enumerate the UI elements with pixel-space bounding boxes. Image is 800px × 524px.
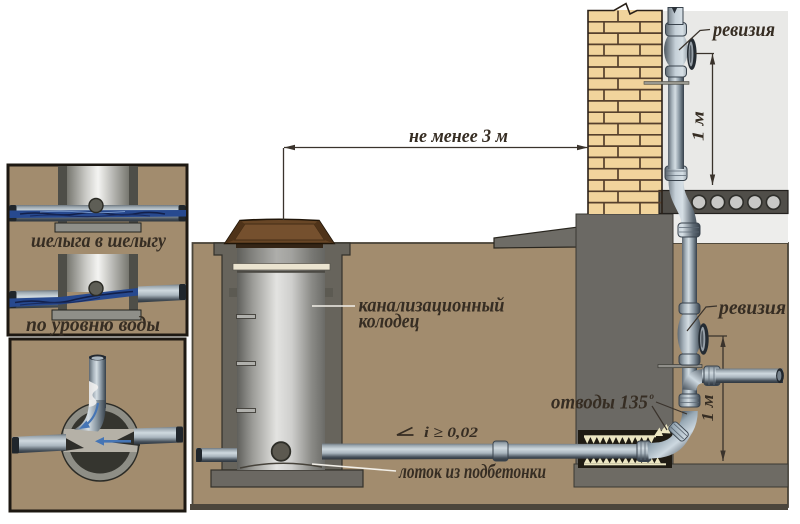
svg-text:отводы 135: отводы 135 [551,392,648,414]
svg-text:1 м: 1 м [698,394,717,421]
svg-text:o: o [650,391,655,401]
svg-text:ревизия: ревизия [717,297,786,319]
svg-text:по уровню воды: по уровню воды [26,312,160,336]
svg-text:ревизия: ревизия [711,19,775,41]
svg-text:i ≥ 0,02: i ≥ 0,02 [424,425,479,441]
svg-text:не менее 3 м: не менее 3 м [409,126,508,147]
svg-text:1 м: 1 м [689,111,708,141]
svg-text:колодец: колодец [359,311,420,333]
svg-text:шелыга в шелыгу: шелыга в шелыгу [31,228,167,252]
svg-text:лоток из подбетонки: лоток из подбетонки [398,461,546,483]
